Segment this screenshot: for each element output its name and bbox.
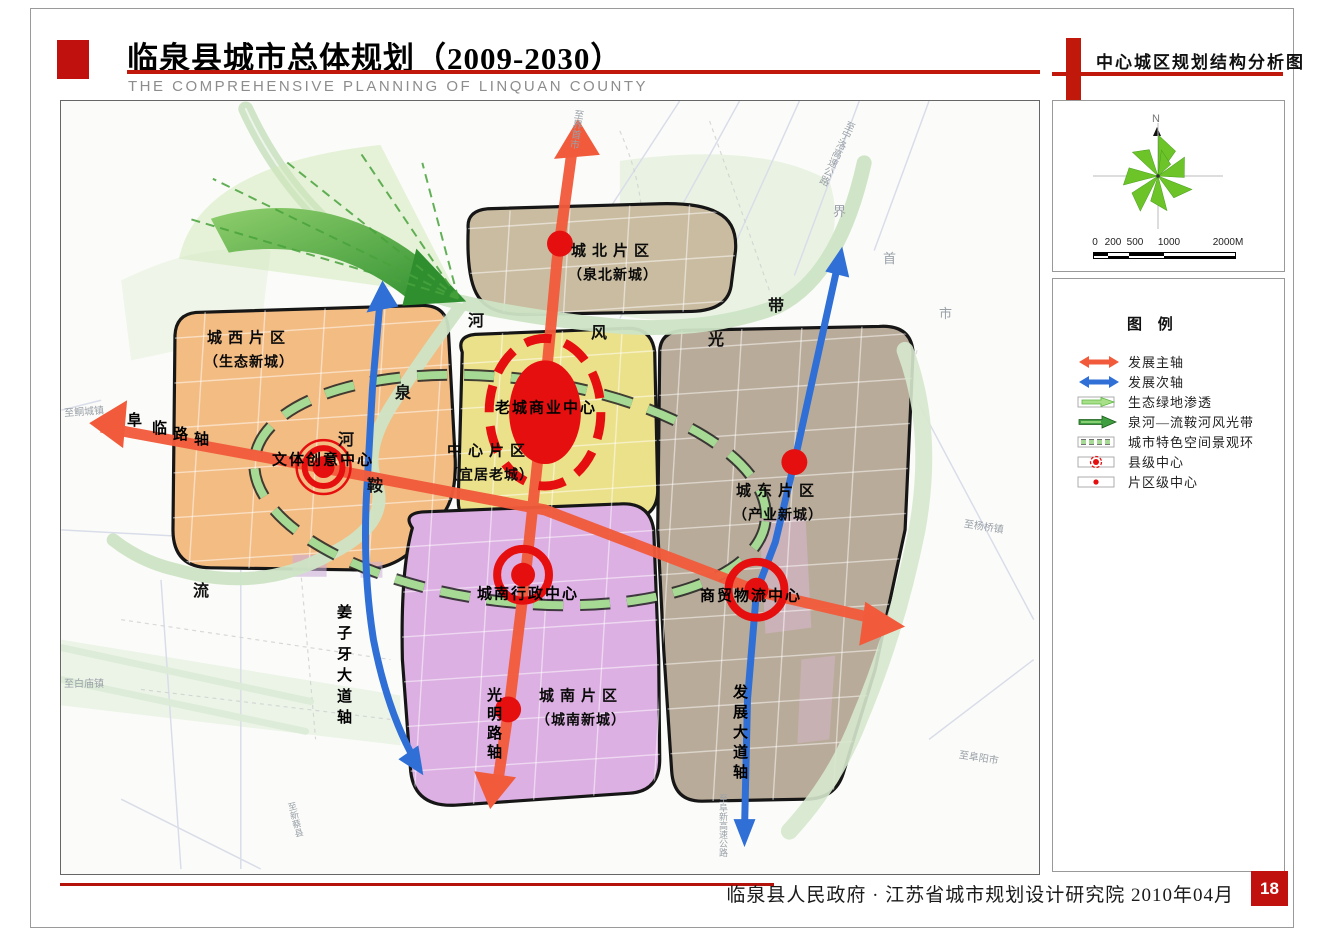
river-char-liu: 流: [193, 577, 209, 601]
legend-box: 图 例 发展主轴 发展次轴 生态绿地渗透: [1052, 278, 1285, 872]
legend-item-county-center: 县级中心: [1077, 454, 1284, 469]
road-label-fuxin: 至阜新高速公路: [717, 794, 730, 872]
red-logo-square: [57, 40, 89, 79]
river-char-dai: 带: [768, 292, 784, 316]
fulin-axis-char-4: 轴: [194, 428, 209, 449]
map-title: 中心城区规划结构分析图: [1096, 48, 1305, 73]
guangming-axis-label: 光明路轴: [483, 687, 504, 775]
district-south-label: 城南片区 （城南新城）: [536, 685, 626, 730]
admin-center-label: 城南行政中心: [477, 583, 579, 604]
road-label-tongcheng: 至鲖城镇: [64, 402, 105, 420]
river-char-guang: 光: [708, 326, 724, 350]
river-char-he1: 河: [338, 426, 354, 450]
scale-tick-500: 500: [1127, 237, 1144, 248]
legend-item-district-center: 片区级中心: [1077, 474, 1284, 489]
compass-scale-box: N 0 200 500 1000 2000M: [1052, 100, 1285, 272]
river-char-feng: 风: [591, 319, 607, 343]
scale-tick-200: 200: [1105, 237, 1122, 248]
road-label-baimiao: 至白庙镇: [64, 675, 104, 690]
district-central-label: 中心片区 （宜居老城）: [444, 440, 534, 485]
legend-item-eco-green: 生态绿地渗透: [1077, 394, 1284, 409]
footer-credit: 临泉县人民政府 · 江苏省城市规划设计研究院 2010年04月: [726, 880, 1234, 907]
legend-title: 图 例: [1127, 313, 1284, 334]
legend-item-river-belt: 泉河—流鞍河风光带: [1077, 414, 1284, 429]
road-char-shou: 首: [883, 248, 896, 267]
fulin-axis-char-2: 临: [152, 417, 167, 438]
river-char-an: 鞍: [367, 472, 383, 496]
legend-item-landscape-ring: 城市特色空间景观环: [1077, 434, 1284, 449]
district-west-label: 城西片区 （生态新城）: [204, 327, 294, 372]
fazhan-axis-label: 发展大道轴: [729, 684, 750, 806]
district-east-label: 城东片区 （产业新城）: [733, 480, 823, 525]
scale-tick-0: 0: [1092, 237, 1098, 248]
scale-bar: 0 200 500 1000 2000M: [1093, 237, 1253, 265]
legend-item-main-axis: 发展主轴: [1077, 354, 1284, 369]
scale-tick-2000: 2000M: [1213, 237, 1244, 248]
scale-bar-blocks: [1093, 252, 1236, 259]
main-axis-symbol-icon: [1077, 354, 1121, 370]
planning-sheet: 临泉县城市总体规划（2009-2030） THE COMPREHENSIVE P…: [0, 0, 1324, 936]
jiangziya-axis-label: 姜子牙大道轴: [333, 604, 354, 759]
culture-center-label: 文体创意中心: [272, 449, 374, 470]
map-canvas: 城北片区 （泉北新城） 城西片区 （生态新城） 中心片区 （宜居老城） 城东片区…: [60, 100, 1040, 875]
landscape-ring-symbol-icon: [1077, 434, 1121, 450]
river-char-he2: 河: [468, 307, 484, 331]
commercial-center-label: 老城商业中心: [495, 397, 597, 418]
district-center-east-dot: [781, 449, 807, 475]
river-char-quan: 泉: [395, 379, 411, 403]
wind-rose-icon: [1083, 121, 1233, 231]
road-char-jie: 界: [833, 201, 846, 220]
district-north-label: 城北片区 （泉北新城）: [568, 240, 658, 285]
fulin-axis-char-1: 阜: [127, 409, 142, 430]
page-subtitle-en: THE COMPREHENSIVE PLANNING OF LINQUAN CO…: [128, 78, 648, 95]
basemap-svg: [61, 101, 1039, 874]
footer-rule: [60, 883, 774, 886]
road-char-shi: 市: [939, 303, 952, 322]
legend-item-secondary-axis: 发展次轴: [1077, 374, 1284, 389]
secondary-axis-symbol-icon: [1077, 374, 1121, 390]
map-title-bar: [1066, 38, 1081, 105]
trade-center-label: 商贸物流中心: [700, 585, 802, 606]
district-center-symbol-icon: [1077, 474, 1121, 490]
fulin-axis-char-3: 路: [173, 423, 188, 444]
eco-green-symbol-icon: [1077, 394, 1121, 410]
river-belt-symbol-icon: [1077, 414, 1121, 430]
scale-tick-1000: 1000: [1158, 237, 1180, 248]
page-number-badge: 18: [1251, 871, 1288, 906]
title-underline: [127, 70, 1040, 74]
county-center-symbol-icon: [1077, 454, 1121, 470]
